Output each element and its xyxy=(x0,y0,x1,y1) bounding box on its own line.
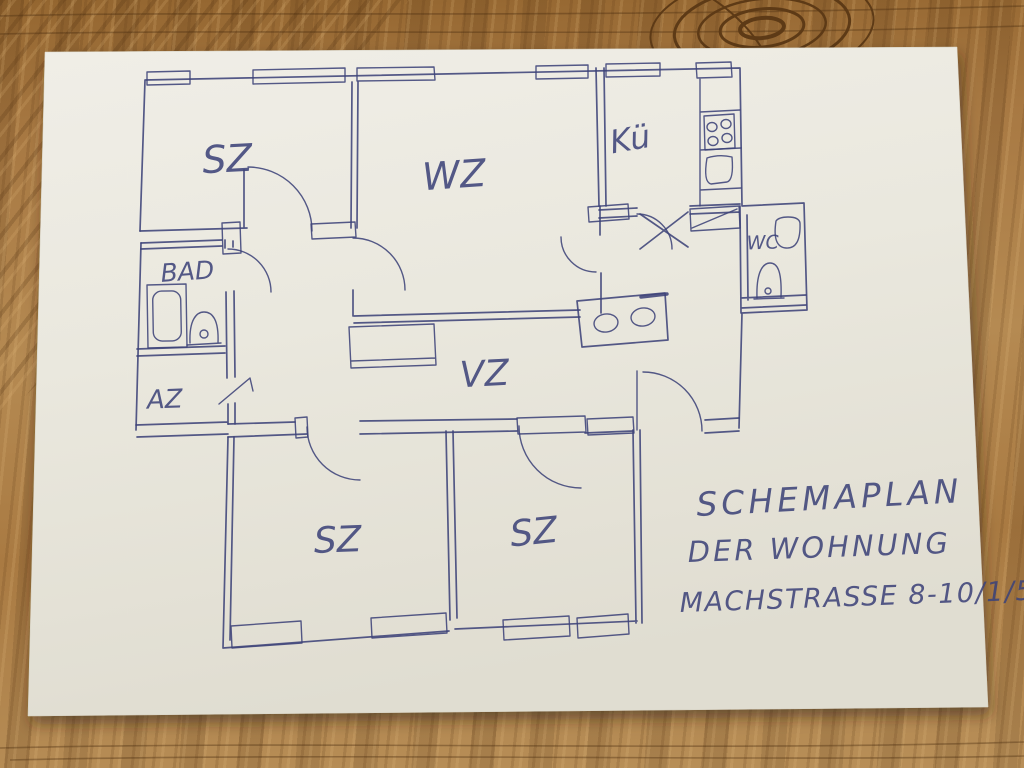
room-label-bad: BAD xyxy=(160,255,215,288)
room-label-az: AZ xyxy=(144,384,184,415)
room-label-wc: WC xyxy=(746,231,780,254)
room-label-sz-bottom-right: SZ xyxy=(508,510,561,556)
room-label-wz: WZ xyxy=(421,151,488,199)
room-label-sz-top-left: SZ xyxy=(201,136,254,183)
room-label-kueche: Kü xyxy=(607,117,653,161)
photo-of-floorplan: SZ WZ Kü BAD AZ WC VZ SZ SZ SCHEMAPLAN D… xyxy=(0,0,1024,768)
room-label-vz: VZ xyxy=(459,353,512,397)
floorplan-photo: SZ WZ Kü BAD AZ WC VZ SZ SZ SCHEMAPLAN D… xyxy=(0,0,1024,768)
grain-line xyxy=(0,742,1024,748)
grain-line xyxy=(10,756,1024,760)
room-label-sz-bottom-left: SZ xyxy=(313,519,363,562)
